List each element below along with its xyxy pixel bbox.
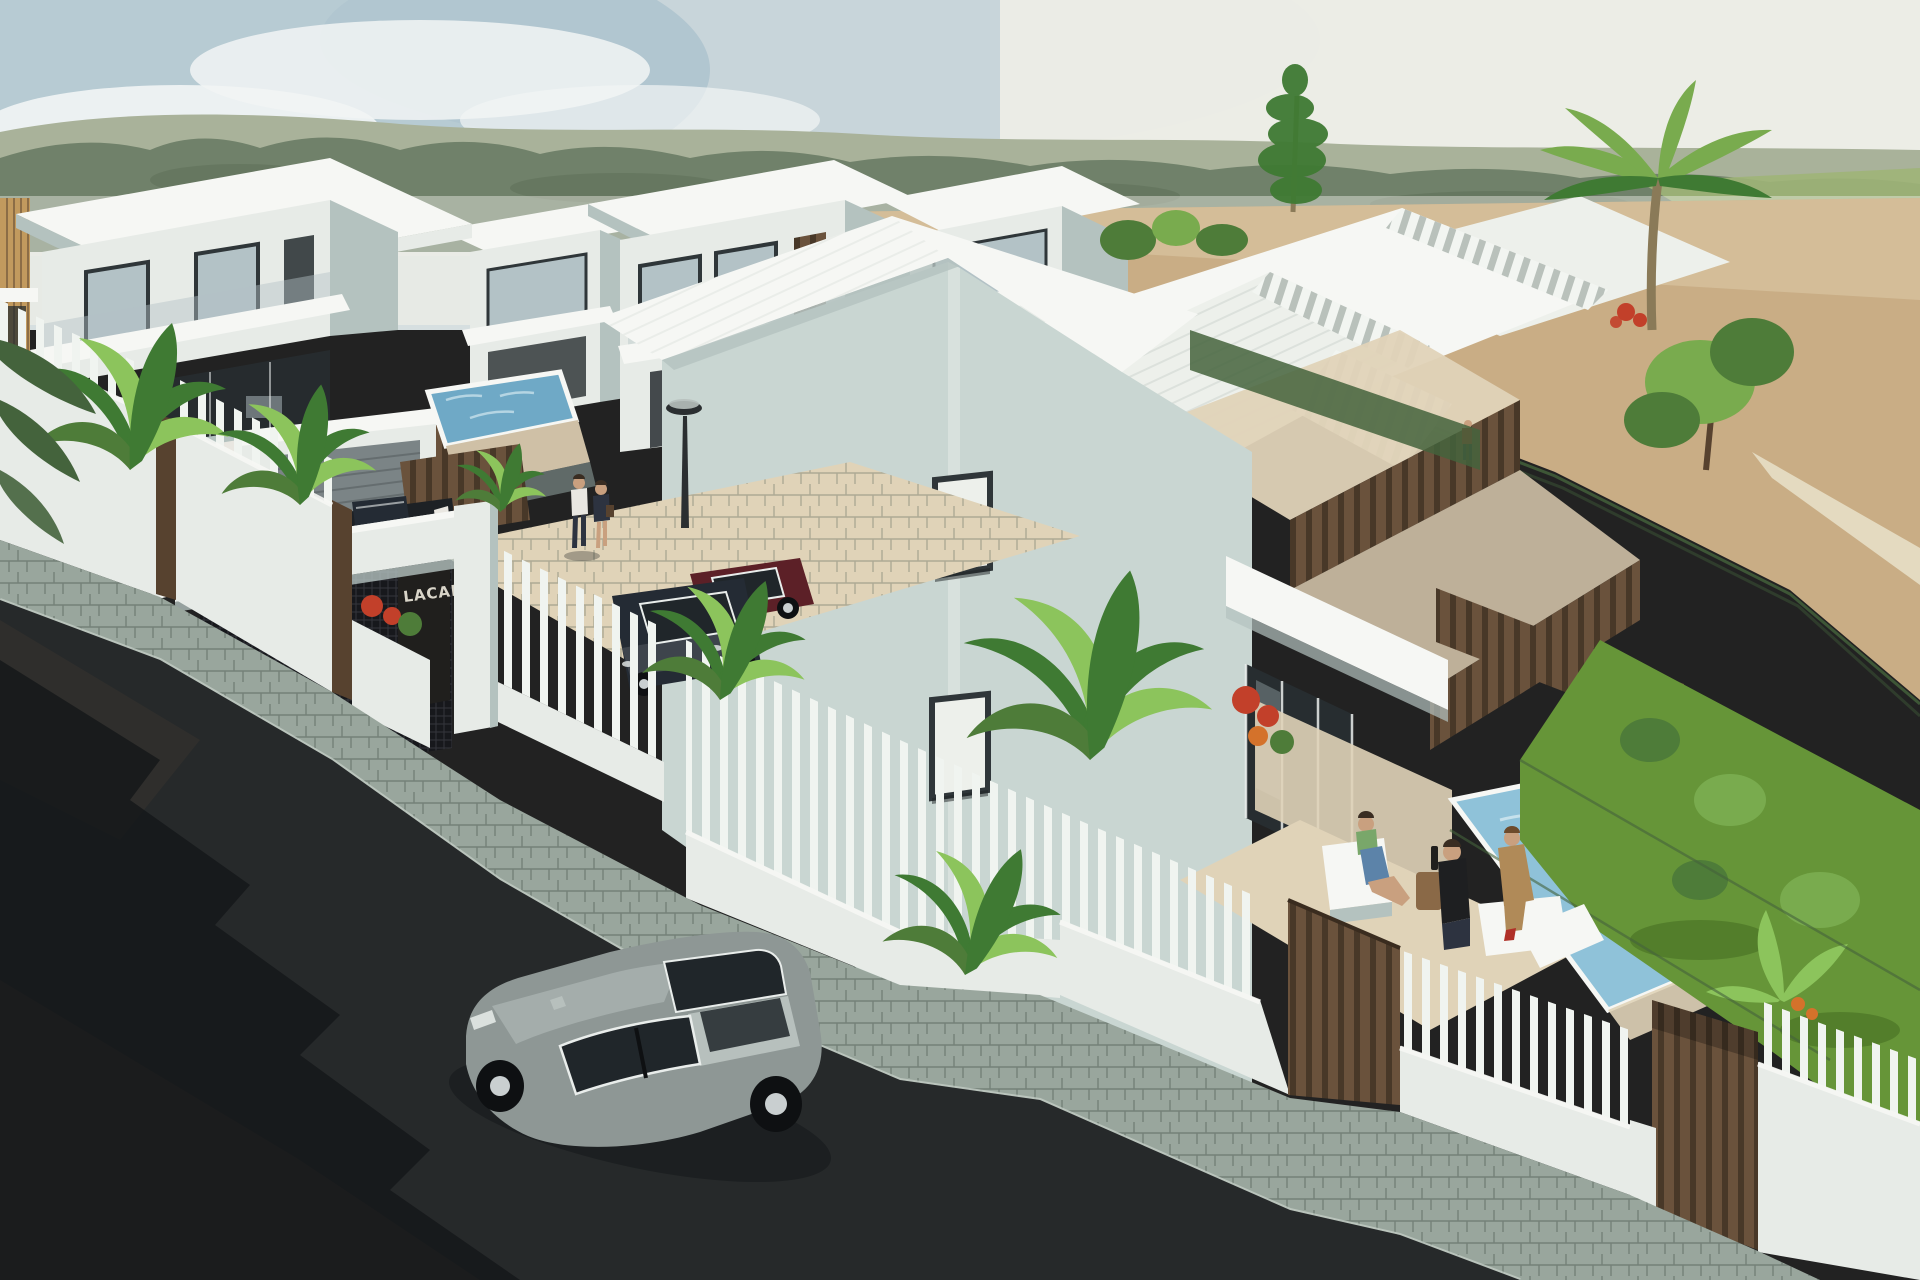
render-canvas: Aerial 3D render of a new-build developm… <box>0 0 1920 1280</box>
render-image: Aerial 3D render of a new-build developm… <box>0 0 1920 1280</box>
